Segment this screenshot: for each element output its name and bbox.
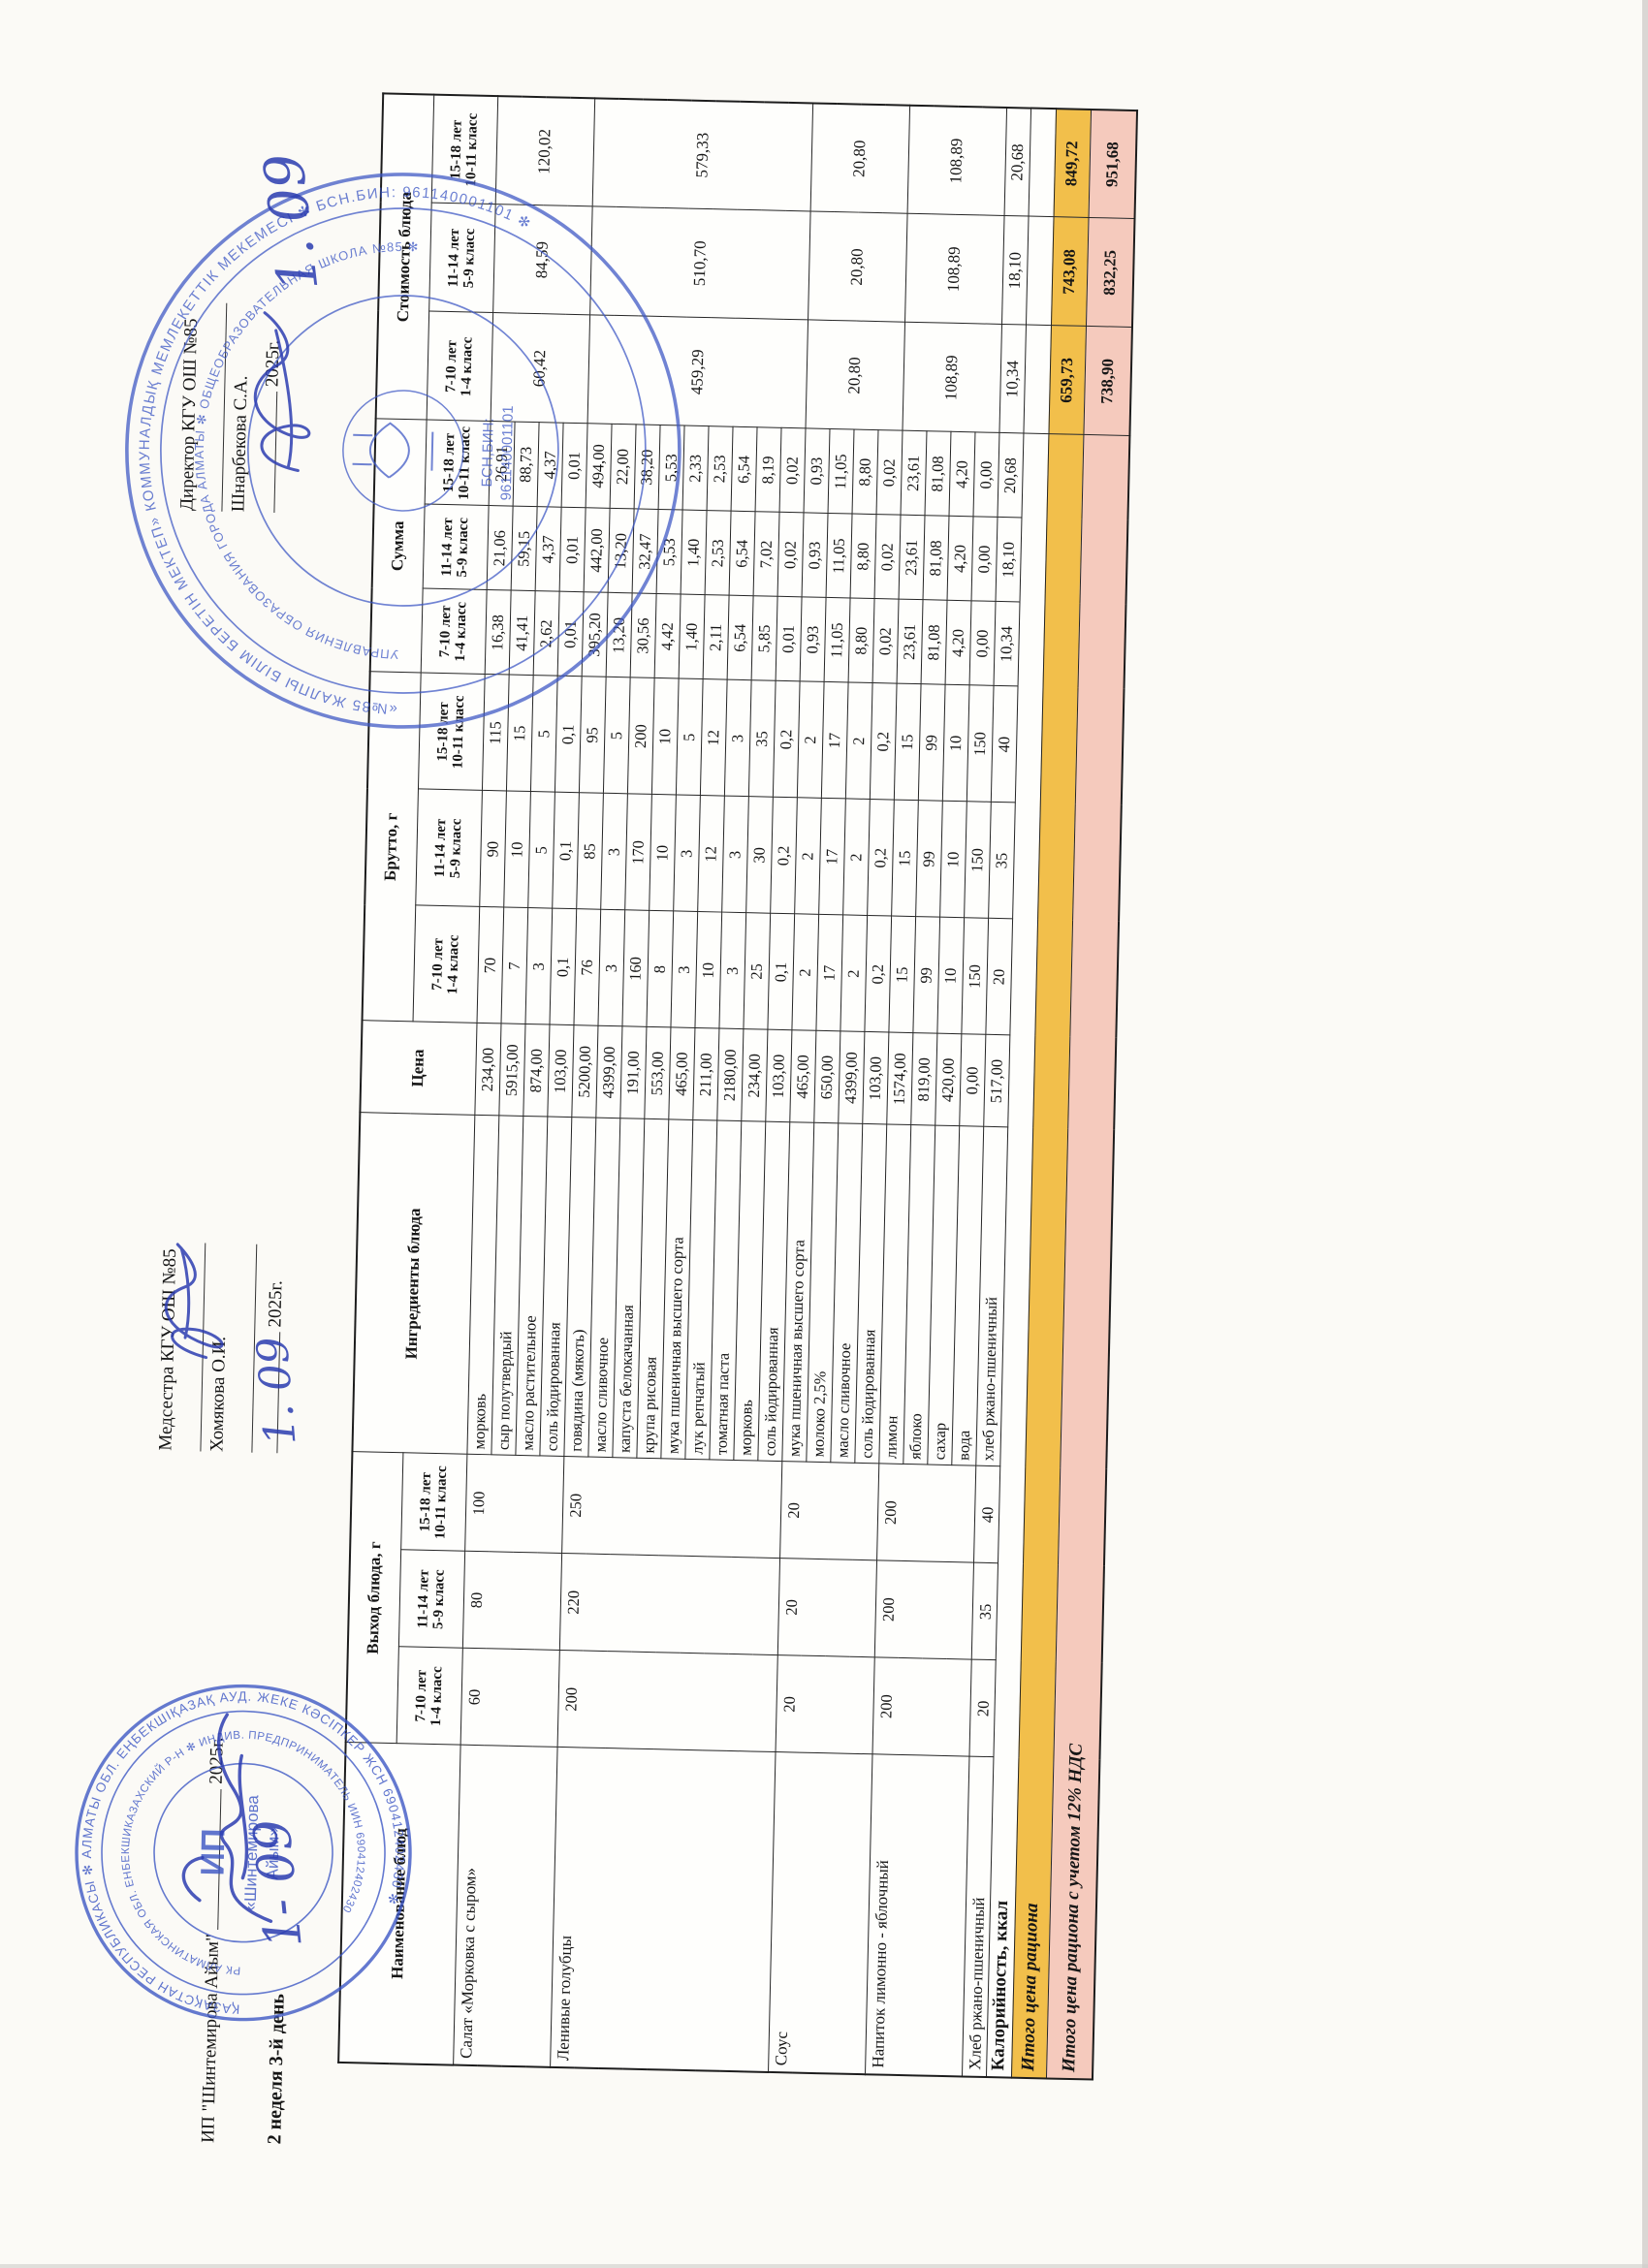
ingredient-value: 395,20 — [582, 592, 608, 677]
ingredient-value: 2,33 — [682, 425, 709, 511]
dish-3-out-2: 200 — [876, 1464, 975, 1562]
ingredient-value: 26,91 — [489, 422, 515, 507]
ingredient-value: 150 — [961, 918, 988, 1035]
week-day-label: 2 неделя 3-й день — [264, 1739, 295, 2145]
nurse-label: Медсестра КГУ ОШ №85 — [155, 1242, 181, 1450]
ingredient-value: 3 — [597, 910, 624, 1027]
ingredient-price: 103,00 — [862, 1032, 888, 1125]
total-value-2-1: 832,25 — [1086, 218, 1135, 328]
ingredient-value: 5 — [530, 676, 557, 793]
ingredient-value: 99 — [915, 801, 942, 918]
ingredient-value: 2 — [842, 799, 870, 916]
ingredient-value: 0,01 — [561, 424, 587, 509]
ingredient-value: 150 — [967, 685, 994, 803]
ingredient-value: 70 — [476, 907, 503, 1024]
ip-sign-line — [204, 1788, 221, 1929]
nurse-date-line — [249, 1244, 257, 1453]
director-sign-line — [219, 303, 227, 512]
ingredient-price: 517,00 — [983, 1035, 1009, 1128]
dish-1-cost-2: 579,33 — [592, 98, 812, 211]
dish-name-0: Салат «Морковка с сыром» — [453, 1746, 556, 2067]
dish-2-out-0: 20 — [776, 1655, 874, 1754]
ingredient-price: 103,00 — [547, 1025, 573, 1118]
ingredient-price: 465,00 — [789, 1030, 815, 1123]
dish-2-cost-2: 20,80 — [810, 103, 910, 213]
age-subheader-3-2: 15-18 лет10-11 класс — [431, 95, 498, 205]
director-year-underline — [260, 392, 277, 513]
age-subheader-3-1: 11-14 лет5-9 класс — [428, 203, 495, 312]
ingredient-value: 0,1 — [555, 677, 582, 794]
ingredient-value: 35 — [748, 680, 776, 798]
total-value-1-1: 743,08 — [1051, 217, 1089, 327]
ingredient-value: 6,54 — [729, 512, 755, 597]
ingredient-value: 5 — [676, 678, 703, 796]
ingredient-value: 38,20 — [634, 425, 660, 510]
ingredient-value: 0,93 — [800, 597, 826, 682]
age-subheader-3-0: 7-10 лет1-4 класс — [427, 311, 493, 421]
ingredient-price: 5915,00 — [498, 1024, 524, 1117]
total-value-2-2: 951,68 — [1089, 110, 1138, 219]
ingredient-price: 874,00 — [523, 1024, 549, 1118]
director-signature-block: Директор КГУ ОШ №85 Шнарбекова С.А. 2025… — [176, 302, 285, 513]
ingredient-value: 4,20 — [947, 517, 973, 602]
ingredient-value: 13,20 — [606, 593, 632, 678]
ingredient-value: 4,37 — [535, 507, 561, 592]
landscape-sheet: ИП "Шинтемирова Айым" 2025г. 2 неделя 3-… — [0, 0, 1648, 2268]
age-subheader-0-2: 15-18 лет10-11 класс — [400, 1453, 466, 1551]
ingredient-price: 211,00 — [692, 1028, 718, 1121]
ingredient-value: 6,54 — [731, 427, 757, 513]
ingredient-price: 553,00 — [644, 1027, 670, 1120]
dish-4-cost-2: 20,68 — [1004, 108, 1031, 217]
ingredient-value: 76 — [573, 909, 600, 1026]
age-subheader-0-0: 7-10 лет1-4 класс — [396, 1647, 462, 1745]
dish-2-out-1: 20 — [777, 1559, 876, 1657]
col-header-name: Наименование блюд — [338, 1743, 460, 2065]
scan-edge-right — [1642, 0, 1648, 2268]
dish-name-3: Напиток лимонно - яблочный — [865, 1754, 968, 2076]
ingredient-value: 85 — [576, 793, 603, 910]
ip-year: 2025г. — [206, 1737, 228, 1784]
total-value-1-0: 659,73 — [1048, 326, 1086, 435]
dish-2-cost-1: 20,80 — [808, 211, 907, 322]
ingredient-value: 23,61 — [899, 516, 925, 601]
ingredient-value: 25 — [743, 913, 770, 1030]
ingredient-value: 88,73 — [513, 423, 539, 508]
dish-name-2: Соус — [768, 1752, 872, 2074]
total-value-0-1 — [1026, 216, 1054, 326]
ingredient-value: 3 — [600, 794, 627, 911]
ingredient-price: 103,00 — [765, 1030, 791, 1123]
age-subheader-2-0: 7-10 лет1-4 класс — [421, 588, 487, 674]
ingredient-value: 20,68 — [997, 433, 1023, 519]
ingredient-value: 0,2 — [773, 681, 800, 799]
nurse-year: 2025г. — [265, 1280, 286, 1328]
ingredient-value: 10 — [503, 791, 530, 908]
dish-1-cost-0: 459,29 — [587, 315, 808, 428]
ingredient-value: 17 — [818, 799, 845, 916]
ingredient-value: 115 — [482, 675, 509, 792]
age-subheader-1-1: 11-14 лет5-9 класс — [415, 789, 482, 906]
ingredient-value: 30,56 — [630, 593, 656, 678]
dish-0-cost-1: 84,59 — [492, 205, 592, 315]
dish-4-cost-0: 10,34 — [998, 325, 1026, 434]
ingredient-value: 30 — [745, 797, 773, 914]
ingredient-price: 1574,00 — [886, 1032, 912, 1125]
ingredient-price: 420,00 — [935, 1034, 961, 1127]
ingredient-value: 0,02 — [777, 513, 804, 598]
ip-line: ИП "Шинтемирова Айым" 2025г. — [198, 1737, 228, 2143]
ingredient-value: 0,93 — [802, 513, 828, 598]
total-value-2-0: 738,90 — [1083, 327, 1132, 436]
nurse-name: Хомякова О.И. — [206, 1244, 233, 1452]
ingredient-value: 3 — [524, 908, 552, 1025]
dish-4-out-1: 35 — [971, 1563, 998, 1661]
ingredient-value: 81,08 — [924, 431, 950, 517]
ingredient-value: 0,2 — [864, 916, 891, 1033]
ingredient-value: 5,85 — [751, 596, 777, 681]
ingredient-value: 5,53 — [656, 510, 682, 595]
ingredient-value: 8,80 — [850, 514, 876, 599]
ingredient-value: 10 — [651, 678, 679, 796]
ingredient-value: 16,38 — [485, 590, 511, 676]
ingredient-value: 18,10 — [996, 518, 1022, 603]
dish-3-cost-2: 108,89 — [907, 106, 1007, 216]
ingredient-price: 465,00 — [668, 1027, 694, 1120]
ingredient-value: 150 — [964, 802, 991, 919]
ingredient-value: 8,80 — [852, 429, 878, 515]
director-label: Директор КГУ ОШ №85 — [176, 302, 203, 511]
ingredient-value: 10 — [694, 912, 721, 1029]
ingredient-value: 21,06 — [487, 506, 513, 591]
ingredient-value: 0,01 — [559, 508, 586, 593]
col-header-out: Выход блюда, г — [346, 1452, 403, 1744]
ingredient-value: 15 — [891, 801, 918, 918]
ingredient-value: 10 — [936, 918, 964, 1035]
ingredient-value: 2,11 — [703, 595, 729, 680]
ingredient-value: 10 — [939, 802, 967, 919]
nurse-signature-block: Медсестра КГУ ОШ №85 Хомякова О.И. 2025г… — [155, 1242, 288, 1453]
ingredient-price: 5200,00 — [571, 1025, 597, 1118]
ingredient-value: 90 — [479, 791, 506, 908]
dish-3-out-1: 200 — [874, 1560, 973, 1659]
ingredient-value: 0,1 — [549, 909, 576, 1026]
dish-0-out-0: 60 — [460, 1649, 559, 1748]
col-header-brutto: Брутто, г — [363, 672, 421, 1022]
ingredient-value: 0,02 — [876, 430, 903, 516]
ingredient-value: 2 — [797, 681, 824, 799]
ingredient-value: 4,42 — [654, 594, 681, 679]
ingredient-price: 191,00 — [619, 1026, 646, 1119]
ingredient-value: 200 — [627, 677, 654, 795]
ingredient-price: 819,00 — [910, 1033, 936, 1126]
ingredient-value: 12 — [700, 679, 727, 797]
ingredient-price: 0,00 — [959, 1034, 985, 1127]
ingredient-value: 12 — [697, 796, 724, 913]
ip-name: ИП "Шинтемирова Айым" — [198, 1934, 223, 2143]
ingredient-value: 4,20 — [948, 432, 974, 518]
age-subheader-1-0: 7-10 лет1-4 класс — [413, 905, 480, 1023]
ingredient-value: 10 — [649, 795, 676, 912]
dish-4-cost-1: 18,10 — [1001, 216, 1029, 326]
ingredient-value: 1,40 — [679, 594, 705, 679]
age-subheader-2-1: 11-14 лет5-9 класс — [423, 504, 489, 589]
ingredient-value: 11,05 — [824, 598, 850, 683]
age-subheader-1-2: 15-18 лет10-11 класс — [418, 673, 485, 790]
ingredient-value: 6,54 — [727, 596, 753, 681]
ingredient-value: 5 — [603, 677, 630, 795]
nurse-year-underline — [263, 1332, 280, 1453]
nurse-year-line: 2025г. — [262, 1244, 288, 1453]
col-header-summa: Сумма — [370, 419, 427, 673]
ingredient-price: 234,00 — [474, 1024, 500, 1117]
ingredient-value: 23,61 — [901, 431, 927, 517]
ingredient-value: 10,34 — [994, 602, 1020, 687]
ingredient-value: 2,53 — [705, 511, 731, 596]
ingredient-value: 5,53 — [658, 425, 684, 511]
ingredient-value: 3 — [724, 680, 751, 798]
ingredient-value: 7 — [500, 907, 527, 1024]
ingredient-value: 99 — [918, 684, 945, 802]
ingredient-value: 8,19 — [755, 427, 781, 513]
ingredient-value: 2,53 — [707, 426, 733, 512]
ingredient-value: 20 — [985, 919, 1012, 1036]
ingredient-value: 15 — [894, 684, 921, 802]
ingredient-value: 11,05 — [828, 429, 854, 515]
ingredient-value: 0,1 — [552, 793, 579, 910]
ingredient-value: 15 — [506, 675, 533, 792]
ingredient-value: 0,02 — [874, 515, 901, 600]
ingredient-value: 8 — [646, 911, 673, 1028]
ingredient-value: 13,20 — [608, 509, 634, 594]
ingredient-value: 2 — [840, 915, 867, 1032]
ingredient-value: 4,37 — [537, 423, 563, 508]
ingredient-value: 0,01 — [776, 597, 802, 682]
dish-3-cost-1: 108,89 — [904, 214, 1004, 325]
ingredient-value: 160 — [621, 910, 649, 1027]
dish-2-out-2: 20 — [779, 1462, 878, 1560]
ingredient-value: 8,80 — [848, 598, 874, 683]
ingredient-price: 4399,00 — [595, 1026, 621, 1119]
dish-3-out-0: 200 — [872, 1657, 970, 1756]
dish-1-cost-1: 510,70 — [589, 206, 809, 320]
ingredient-value: 0,1 — [767, 914, 794, 1031]
ingredient-value: 3 — [721, 797, 748, 914]
ingredient-value: 81,08 — [923, 516, 949, 601]
ingredient-value: 15 — [888, 916, 915, 1033]
scan-edge-bottom — [0, 2264, 1648, 2268]
ingredient-value: 0,2 — [867, 800, 894, 917]
dish-3-cost-0: 108,89 — [902, 323, 1001, 433]
ingredient-value: 170 — [624, 794, 651, 911]
director-year-line: 2025г. — [259, 304, 285, 513]
ingredient-value: 3 — [670, 911, 697, 1028]
dish-2-cost-0: 20,80 — [806, 320, 905, 430]
ingredient-value: 11,05 — [826, 514, 852, 599]
ingredient-value: 0,00 — [972, 432, 998, 518]
ingredient-value: 442,00 — [584, 508, 610, 593]
col-header-cost: Стоимость блюда — [376, 93, 434, 420]
ingredient-value: 35 — [988, 803, 1015, 920]
ingredient-price: 234,00 — [741, 1029, 767, 1122]
ingredient-value: 40 — [991, 686, 1018, 803]
dish-4-out-2: 40 — [973, 1466, 999, 1564]
ingredient-value: 32,47 — [632, 509, 658, 594]
scanned-menu-page: ИП "Шинтемирова Айым" 2025г. 2 неделя 3-… — [0, 0, 1648, 2268]
ingredient-price: 4399,00 — [838, 1031, 864, 1124]
ingredient-value: 5 — [527, 792, 555, 909]
ingredient-value: 23,61 — [897, 600, 923, 685]
dish-0-out-1: 80 — [462, 1552, 561, 1651]
ingredient-value: 2 — [845, 682, 872, 800]
ingredient-value: 0,00 — [969, 601, 996, 686]
ingredient-value: 17 — [815, 915, 842, 1032]
ingredient-value: 0,00 — [971, 517, 998, 602]
ingredient-value: 494,00 — [586, 424, 612, 509]
ingredient-value: 0,01 — [557, 592, 584, 677]
director-year: 2025г. — [262, 340, 283, 388]
dish-0-cost-2: 120,02 — [495, 96, 595, 206]
age-subheader-2-2: 15-18 лет10-11 класс — [425, 420, 491, 505]
ingredient-value: 59,15 — [511, 506, 537, 591]
dish-0-cost-0: 60,42 — [491, 313, 590, 424]
menu-table: Наименование блюдВыход блюда, гИнгредиен… — [337, 92, 1138, 2080]
dish-1-out-2: 250 — [561, 1457, 781, 1559]
ingredient-value: 2 — [791, 914, 818, 1031]
ingredient-value: 10 — [942, 685, 969, 803]
ip-signature-block: ИП "Шинтемирова Айым" 2025г. 2 неделя 3-… — [198, 1737, 295, 2145]
ingredient-price: 650,00 — [813, 1031, 840, 1124]
total-value-1-2: 849,72 — [1054, 109, 1092, 218]
ingredient-value: 17 — [821, 682, 848, 800]
ingredient-value: 2 — [794, 798, 821, 915]
ingredient-value: 2,62 — [533, 591, 559, 677]
ingredient-value: 3 — [718, 913, 745, 1030]
ingredient-value: 0,2 — [870, 683, 897, 801]
ingredient-value: 41,41 — [509, 590, 535, 676]
ingredient-value: 99 — [912, 917, 939, 1034]
ingredient-value: 0,02 — [872, 599, 899, 684]
col-header-price: Цена — [360, 1021, 476, 1116]
ingredient-value: 4,20 — [945, 601, 971, 686]
ingredient-value: 0,2 — [770, 798, 797, 915]
total-value-0-2 — [1029, 108, 1057, 217]
age-subheader-0-1: 11-14 лет5-9 класс — [398, 1550, 464, 1648]
ingredient-value: 7,02 — [753, 512, 779, 597]
nurse-sign-line — [198, 1243, 206, 1451]
col-header-ingredients: Ингредиенты блюда — [352, 1113, 474, 1455]
dish-1-out-0: 200 — [557, 1651, 777, 1752]
ingredient-value: 1,40 — [681, 510, 707, 595]
ingredient-value: 0,93 — [804, 428, 830, 514]
ingredient-value: 0,02 — [779, 428, 806, 514]
director-handwritten-date: 1. 09 — [252, 150, 331, 295]
ingredient-value: 95 — [579, 677, 606, 794]
ingredient-price: 2180,00 — [716, 1028, 743, 1121]
ingredient-value: 81,08 — [921, 600, 947, 685]
ingredient-value: 22,00 — [610, 425, 636, 510]
dish-1-out-1: 220 — [559, 1554, 779, 1655]
total-value-0-0 — [1023, 325, 1051, 434]
dish-4-out-0: 20 — [968, 1660, 995, 1758]
director-name: Шнарбекова С.А. — [228, 303, 254, 512]
ingredient-value: 3 — [673, 795, 700, 912]
dish-name-1: Ленивые голубцы — [550, 1748, 775, 2072]
dish-0-out-2: 100 — [464, 1455, 563, 1554]
